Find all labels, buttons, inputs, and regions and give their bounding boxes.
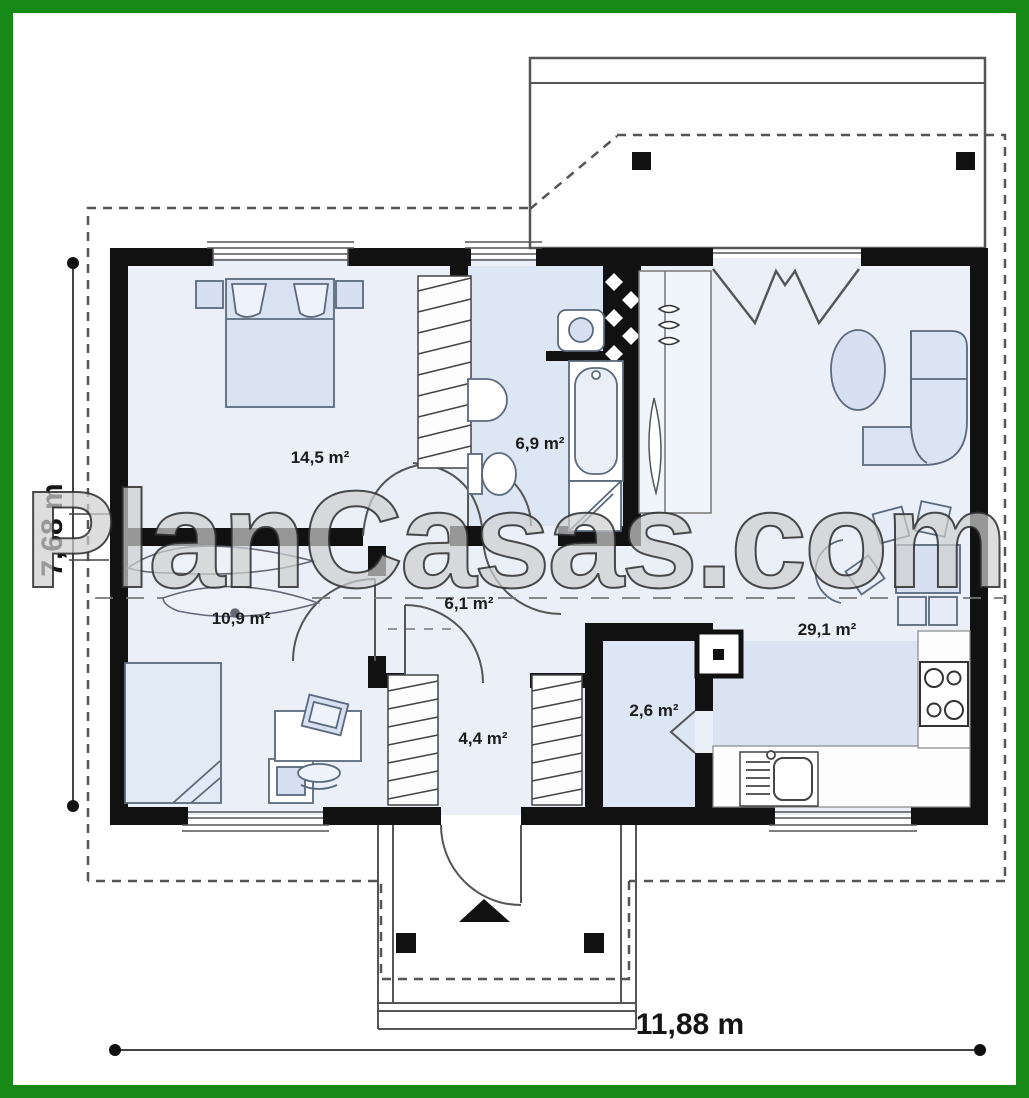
terrace-column: [632, 152, 651, 170]
area-label-bedroom: 14,5 m²: [291, 448, 350, 468]
radiator-icon: [659, 306, 679, 345]
kitchen-floor: [713, 641, 918, 746]
pillow: [232, 284, 266, 317]
floor-plan-drawing: [13, 13, 1029, 1098]
nightstand: [196, 281, 223, 308]
bedroom-wardrobe: [418, 276, 471, 468]
nightstand: [336, 281, 363, 308]
dining-table: [896, 545, 960, 593]
porch-post: [584, 933, 604, 953]
chimney-flue: [697, 632, 741, 676]
hall-cabinet: [639, 271, 711, 513]
terrace-column: [956, 152, 975, 170]
area-label-living-kitchen: 29,1 m²: [798, 620, 857, 640]
stove: [920, 662, 968, 726]
washbasin: [468, 379, 507, 421]
oval-table: [831, 330, 885, 410]
area-label-bedroom-2: 10,9 m²: [212, 609, 271, 629]
front-door: [441, 825, 521, 905]
single-bed: [125, 663, 221, 803]
pillow: [294, 284, 328, 317]
area-label-bathroom: 6,9 m²: [515, 434, 564, 454]
entry-porch: [378, 825, 636, 1029]
floor-plan-image: 14,5 m² 6,9 m² 10,9 m² 6,1 m² 4,4 m² 2,6…: [0, 0, 1029, 1098]
width-dimension-label: 11,88 m: [636, 1008, 744, 1042]
desk-chair: [298, 764, 340, 782]
toilet-bowl: [482, 453, 516, 495]
kitchen-sink: [740, 751, 818, 806]
depth-dimension-label: 7,68 m: [36, 483, 70, 576]
area-label-hall: 6,1 m²: [444, 594, 493, 614]
area-label-pantry: 2,6 m²: [629, 701, 678, 721]
area-label-entry: 4,4 m²: [458, 729, 507, 749]
toilet-tank: [468, 454, 482, 494]
porch-post: [396, 933, 416, 953]
